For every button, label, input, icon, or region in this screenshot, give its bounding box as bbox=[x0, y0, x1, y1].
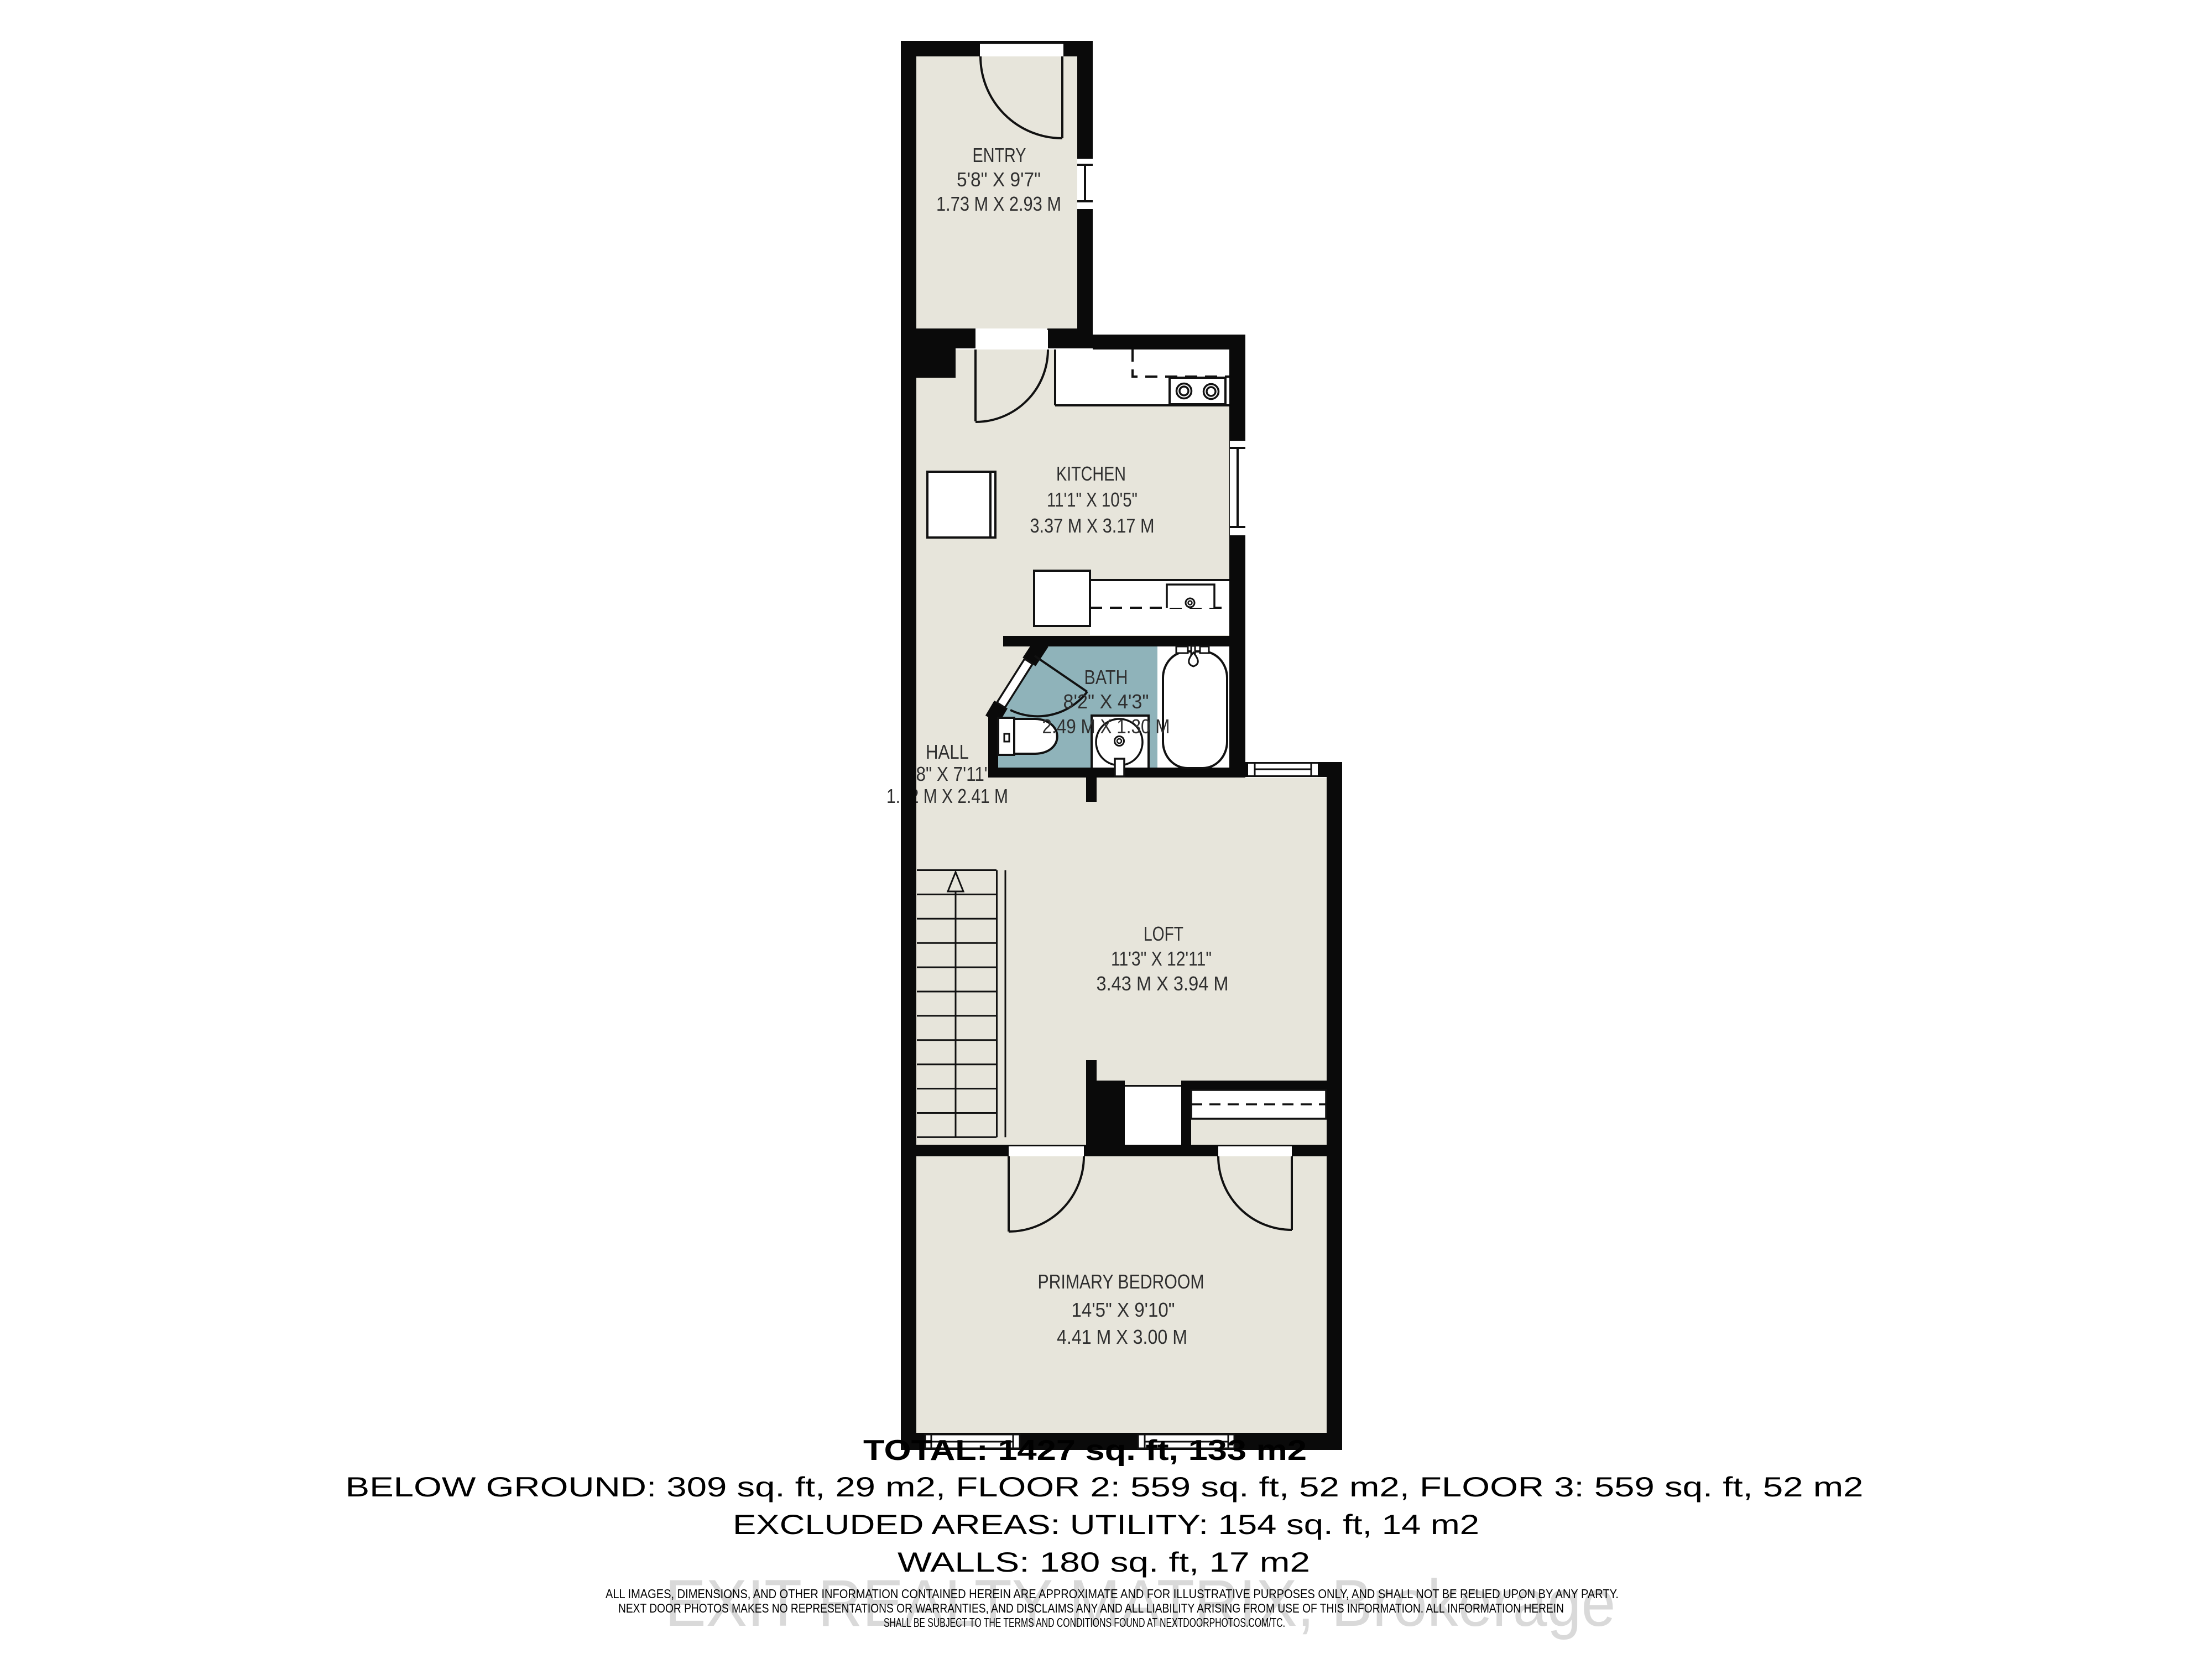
svg-text:ENTRY: ENTRY bbox=[973, 144, 1026, 166]
svg-text:3.43 M X 3.94 M: 3.43 M X 3.94 M bbox=[1097, 972, 1229, 995]
svg-text:BELOW GROUND: 309 sq. ft, 29 m: BELOW GROUND: 309 sq. ft, 29 m2, FLOOR 2… bbox=[346, 1472, 1864, 1503]
svg-text:3.37 M X 3.17 M: 3.37 M X 3.17 M bbox=[1030, 514, 1155, 537]
svg-text:11'1" X 10'5": 11'1" X 10'5" bbox=[1047, 488, 1138, 511]
svg-text:ALL IMAGES, DIMENSIONS, AND OT: ALL IMAGES, DIMENSIONS, AND OTHER INFORM… bbox=[606, 1587, 1619, 1601]
svg-text:SHALL BE SUBJECT TO THE TERMS: SHALL BE SUBJECT TO THE TERMS AND CONDIT… bbox=[884, 1615, 1285, 1630]
svg-text:HALL: HALL bbox=[926, 740, 969, 763]
svg-text:TOTAL: 1427 sq. ft, 133 m2: TOTAL: 1427 sq. ft, 133 m2 bbox=[863, 1434, 1307, 1467]
svg-text:WALLS: 180 sq. ft, 17 m2: WALLS: 180 sq. ft, 17 m2 bbox=[898, 1547, 1310, 1578]
svg-text:8'2" X 4'3": 8'2" X 4'3" bbox=[1063, 690, 1149, 713]
svg-text:EXCLUDED AREAS: UTILITY: 154 s: EXCLUDED AREAS: UTILITY: 154 sq. ft, 14 … bbox=[733, 1509, 1479, 1540]
svg-text:1.73 M X 2.93 M: 1.73 M X 2.93 M bbox=[936, 192, 1061, 215]
svg-text:PRIMARY BEDROOM: PRIMARY BEDROOM bbox=[1038, 1270, 1204, 1293]
svg-text:NEXT DOOR PHOTOS MAKES NO REPR: NEXT DOOR PHOTOS MAKES NO REPRESENTATION… bbox=[618, 1601, 1564, 1615]
svg-text:14'5" X 9'10": 14'5" X 9'10" bbox=[1072, 1298, 1175, 1321]
svg-text:2.49 M X 1.30 M: 2.49 M X 1.30 M bbox=[1042, 715, 1170, 738]
svg-text:5'8" X 9'7": 5'8" X 9'7" bbox=[957, 168, 1041, 191]
svg-text:KITCHEN: KITCHEN bbox=[1056, 462, 1126, 485]
svg-text:LOFT: LOFT bbox=[1144, 922, 1183, 945]
svg-text:BATH: BATH bbox=[1084, 666, 1128, 688]
svg-text:4.41 M X 3.00 M: 4.41 M X 3.00 M bbox=[1057, 1326, 1187, 1348]
svg-text:11'3" X 12'11": 11'3" X 12'11" bbox=[1111, 947, 1212, 970]
